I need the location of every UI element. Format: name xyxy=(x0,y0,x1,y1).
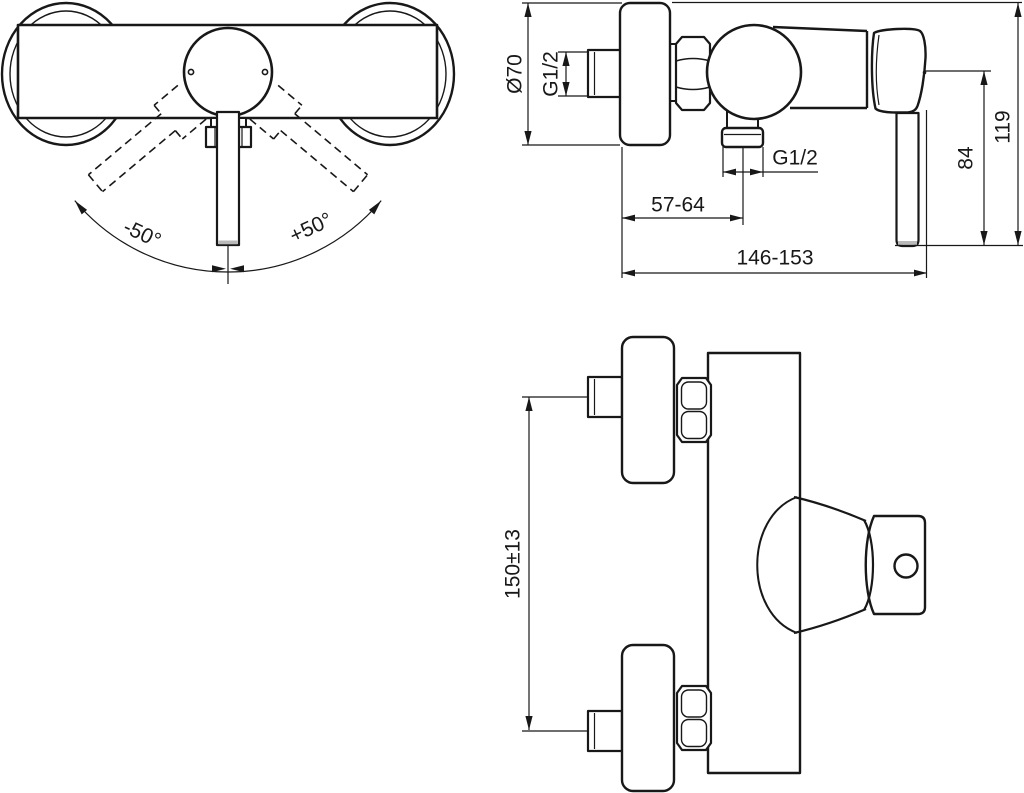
angle-label-left: -50° xyxy=(120,215,165,252)
dim-inlet-thread: G1/2 xyxy=(540,51,589,97)
side-view: Ø70 G1/2 G1/2 57-64 146 xyxy=(504,3,1024,279)
protrusion-bottom-edge xyxy=(794,609,866,633)
dia70-label: Ø70 xyxy=(504,54,527,94)
front-view: -50° +50° xyxy=(2,3,454,284)
mixer-drawing-svg: -50° +50° xyxy=(0,0,1024,793)
cartridge-cover xyxy=(184,28,272,116)
protrusion-top-edge xyxy=(794,497,866,521)
escutcheon-plan-bottom xyxy=(622,645,674,791)
escutcheon-plan-top xyxy=(622,337,674,483)
outlet-thread-label: G1/2 xyxy=(772,147,818,170)
plan-view: 150±13 xyxy=(502,337,926,791)
mounting-nut xyxy=(676,37,710,110)
dim-inlet-spacing: 150±13 xyxy=(502,397,589,731)
handle-stick-cap xyxy=(898,241,917,245)
overall-depth-label: 146-153 xyxy=(736,247,813,270)
dim-119-label: 119 xyxy=(992,110,1015,143)
wall-to-outlet-label: 57-64 xyxy=(651,194,705,217)
valve-body xyxy=(707,25,801,119)
handle-lever-front-cap xyxy=(219,241,238,245)
inlet-spacing-label: 150±13 xyxy=(502,529,525,599)
dim-84-label: 84 xyxy=(955,146,978,170)
inlet-pipe-bottom xyxy=(588,711,622,751)
handle-hub-side xyxy=(872,29,926,113)
inlet-pipe xyxy=(588,50,622,97)
technical-drawing-canvas: -50° +50° xyxy=(0,0,1024,793)
escutcheon-side xyxy=(620,3,670,145)
handle-lever-front xyxy=(217,112,239,245)
inlet-pipe-top xyxy=(588,377,622,417)
inlet-thread-label: G1/2 xyxy=(540,51,563,97)
angle-label-right: +50° xyxy=(286,208,336,247)
outlet-cap xyxy=(722,128,763,147)
handle-stick-side xyxy=(897,113,919,246)
body-plan xyxy=(708,353,800,773)
dim-outlet-thread: G1/2 xyxy=(723,147,818,178)
handle-screw xyxy=(895,555,918,578)
dim-wall-to-outlet: 57-64 xyxy=(622,147,743,278)
